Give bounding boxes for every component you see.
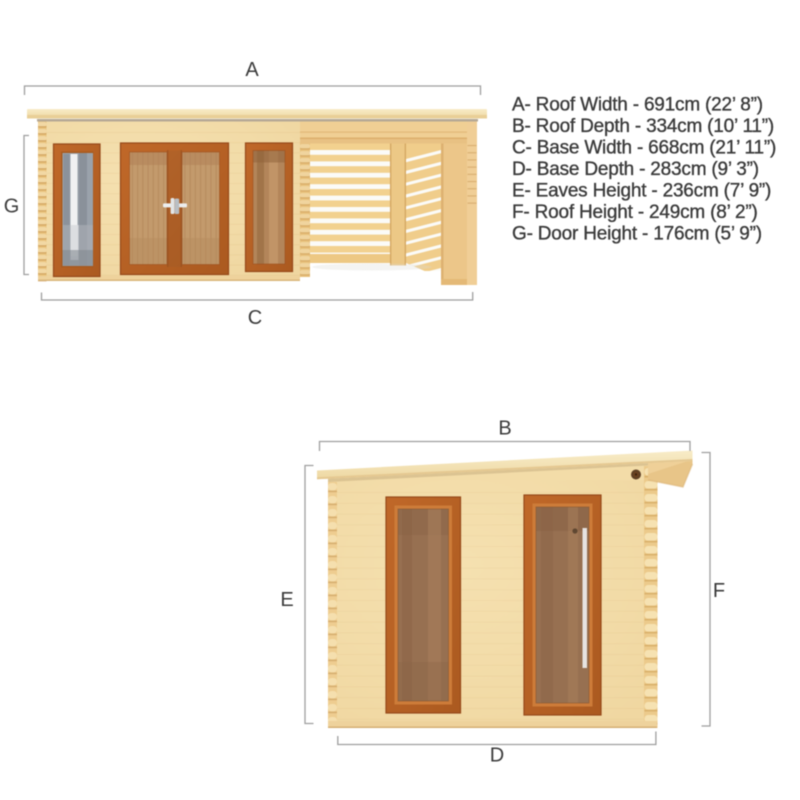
svg-text:D: D	[490, 745, 504, 767]
svg-text:C: C	[248, 307, 262, 329]
svg-text:G- Door Height - 176cm (5’ 9”): G- Door Height - 176cm (5’ 9”)	[512, 224, 762, 245]
svg-text:F: F	[713, 580, 725, 602]
svg-text:B: B	[498, 418, 511, 440]
svg-text:B- Roof Depth - 334cm (10’ 11”: B- Roof Depth - 334cm (10’ 11”)	[512, 116, 774, 137]
svg-text:A- Roof Width - 691cm (22’ 8”): A- Roof Width - 691cm (22’ 8”)	[512, 95, 763, 116]
svg-text:F- Roof Height - 249cm (8’ 2”): F- Roof Height - 249cm (8’ 2”)	[512, 202, 758, 223]
svg-text:A: A	[245, 59, 259, 81]
svg-text:E- Eaves Height - 236cm (7’ 9”: E- Eaves Height - 236cm (7’ 9”)	[512, 181, 771, 202]
svg-text:C- Base Width - 668cm (21’ 11”: C- Base Width - 668cm (21’ 11”)	[512, 138, 776, 159]
svg-text:D- Base Depth - 283cm (9’ 3”): D- Base Depth - 283cm (9’ 3”)	[512, 159, 759, 180]
svg-text:E: E	[280, 589, 293, 611]
svg-text:G: G	[4, 196, 20, 218]
